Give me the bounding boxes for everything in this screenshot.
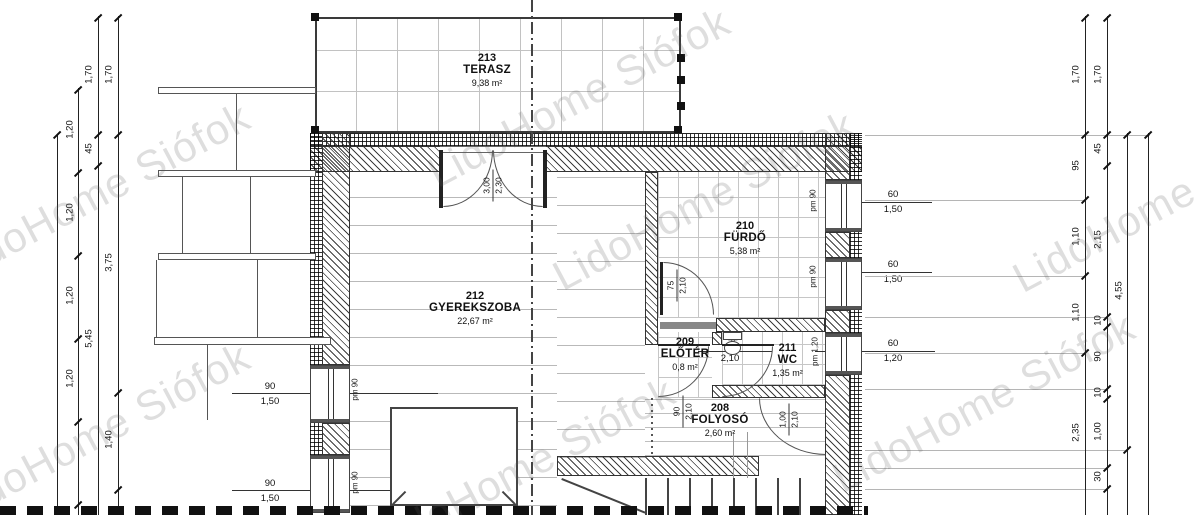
dim-label: 1,70 xyxy=(1093,53,1104,97)
step-edge xyxy=(156,260,157,338)
room-name: FOLYOSÓ xyxy=(650,414,790,427)
sill-height-label: pm 90 xyxy=(351,465,360,501)
dimension-chain-left-4 xyxy=(118,16,119,515)
window-frame xyxy=(826,334,861,337)
sill-height-label: pm 90 xyxy=(809,183,818,219)
window-width: 90 xyxy=(255,478,285,489)
terrace-post xyxy=(311,13,319,21)
dim-label: 45 xyxy=(1093,127,1104,171)
terrace-post xyxy=(677,102,685,110)
room-area: 5,38 m² xyxy=(675,245,815,257)
window-glass xyxy=(841,259,847,309)
room-label-terasz: 213 TERASZ 9,38 m² xyxy=(417,52,557,89)
dim-label: 45 xyxy=(84,127,95,171)
left-wall-insulation xyxy=(310,133,322,365)
room-number: 210 xyxy=(675,220,815,232)
dim-label: 30 xyxy=(1093,455,1104,499)
bathroom-west-wall xyxy=(645,172,658,345)
right-wall xyxy=(825,232,850,258)
window-height: 1,50 xyxy=(255,493,285,504)
terrace-door-leaf xyxy=(543,150,547,208)
room-name: WC xyxy=(740,354,835,367)
right-wall-insulation xyxy=(850,375,862,515)
window-width: 60 xyxy=(878,338,908,349)
dim-label: 1,20 xyxy=(65,191,76,235)
bathroom-window-1 xyxy=(825,180,862,232)
witness-line xyxy=(865,353,1085,354)
dim-label: 2,35 xyxy=(1071,411,1082,455)
room-area: 2,60 m² xyxy=(650,427,790,439)
room-name: GYEREKSZOBA xyxy=(395,302,555,315)
floor-plan-canvas: 3,002,30 xyxy=(0,0,1200,515)
window-width: 60 xyxy=(878,259,908,270)
room-number: 208 xyxy=(650,402,790,414)
step-edge xyxy=(207,345,208,420)
left-window-2 xyxy=(310,455,350,513)
window-glass xyxy=(841,334,847,374)
terrace-post xyxy=(677,76,685,84)
window-glass xyxy=(841,181,847,231)
window-frame xyxy=(826,306,861,309)
dim-label: 1,70 xyxy=(84,53,95,97)
bathroom-south-wall xyxy=(716,318,825,332)
room-number: 212 xyxy=(395,290,555,302)
left-wall-insulation xyxy=(310,423,322,455)
window-glass xyxy=(328,456,334,512)
window-glass xyxy=(328,366,334,422)
right-wall-insulation xyxy=(850,232,862,258)
step-edge xyxy=(250,177,251,254)
dim-label: 3,75 xyxy=(104,241,115,285)
right-wall-insulation xyxy=(850,133,862,180)
window-frame xyxy=(826,259,861,262)
window-frame xyxy=(311,419,349,422)
step-edge xyxy=(257,260,258,338)
dim-label: 1,20 xyxy=(65,274,76,318)
terrace-post xyxy=(674,13,682,21)
left-wall-pier xyxy=(322,423,350,455)
dimension-chain-right-3 xyxy=(1127,133,1128,515)
dim-label: 5,45 xyxy=(84,317,95,361)
witness-line xyxy=(865,468,1107,469)
room-area: 1,35 m² xyxy=(740,367,835,379)
dimension-chain-left-3 xyxy=(98,16,99,515)
dim-label: 95 xyxy=(1071,144,1082,188)
dimension-chain-left-1 xyxy=(57,135,58,515)
window-height: 1,50 xyxy=(255,396,285,407)
right-wall xyxy=(825,375,850,515)
section-cut-strip xyxy=(0,506,868,515)
room-area: 9,38 m² xyxy=(417,77,557,89)
witness-line xyxy=(865,389,1107,390)
dim-label: 1,40 xyxy=(104,418,115,462)
exterior-step xyxy=(158,87,316,94)
step-edge xyxy=(182,177,183,254)
witness-line xyxy=(865,200,1085,201)
dimension-chain-right-1 xyxy=(1085,16,1086,515)
left-window-1 xyxy=(310,365,350,423)
terrace-door-leaf xyxy=(439,150,443,208)
exterior-step xyxy=(158,253,316,260)
childroom-floor xyxy=(557,172,645,458)
terrace-post xyxy=(677,54,685,62)
room-area: 0,8 m² xyxy=(640,361,730,373)
room-name: TERASZ xyxy=(417,64,557,77)
window-width: 60 xyxy=(878,189,908,200)
dim-label: 1,20 xyxy=(65,108,76,152)
sill-height-label: pm 90 xyxy=(351,372,360,408)
right-wall-insulation xyxy=(850,310,862,333)
dimension-chain-right-2 xyxy=(1107,16,1108,515)
window-frame xyxy=(311,456,349,459)
dim-label: 1,00 xyxy=(1093,410,1104,454)
top-wall-insulation xyxy=(310,133,862,146)
bathroom-door-threshold xyxy=(660,322,716,329)
sill-height-label: pm 90 xyxy=(809,259,818,295)
room-label-wc: 211 WC 1,35 m² xyxy=(740,342,835,379)
step-edge xyxy=(236,94,237,171)
dim-label: 1,10 xyxy=(1071,215,1082,259)
exterior-step xyxy=(154,337,331,345)
terrace-door-dimension: 3,002,30 xyxy=(482,170,505,202)
dimension-chain-right-4 xyxy=(1148,133,1149,515)
room-number: 209 xyxy=(640,336,730,348)
bathroom-window-2 xyxy=(825,258,862,310)
room-label-folyoso: 208 FOLYOSÓ 2,60 m² xyxy=(650,402,790,439)
window-width: 90 xyxy=(255,381,285,392)
dim-label: 1,20 xyxy=(65,357,76,401)
window-frame xyxy=(826,181,861,184)
window-height: 1,50 xyxy=(878,204,908,215)
room-label-eloter: 209 ELŐTÉR 0,8 m² xyxy=(640,336,730,373)
witness-line xyxy=(865,276,1085,277)
dim-label: 4,55 xyxy=(1114,269,1125,313)
left-wall xyxy=(322,133,350,365)
witness-line xyxy=(865,489,1107,490)
watermark: LidoHome Siófok xyxy=(0,93,258,293)
stair-wall xyxy=(557,456,759,476)
dimension-chain-left-2 xyxy=(78,88,79,515)
window-frame xyxy=(311,366,349,369)
room-number: 213 xyxy=(417,52,557,64)
dim-label: 1,10 xyxy=(1071,291,1082,335)
witness-line xyxy=(865,450,1127,451)
bathroom-door-dimension: 752,10 xyxy=(666,270,689,302)
watermark: LidoHome Siófok xyxy=(0,333,258,515)
bathroom-door-leaf xyxy=(660,262,663,315)
room-name: FÜRDŐ xyxy=(675,232,815,245)
window-frame xyxy=(826,228,861,231)
room-area: 22,67 m² xyxy=(395,315,555,327)
room-name: ELŐTÉR xyxy=(640,348,730,361)
dim-label: 1,70 xyxy=(1071,53,1082,97)
room-label-furdo: 210 FÜRDŐ 5,38 m² xyxy=(675,220,815,257)
window-height: 1,20 xyxy=(878,353,908,364)
room-number: 211 xyxy=(740,342,835,354)
right-wall xyxy=(825,310,850,333)
dim-label: 1,70 xyxy=(104,53,115,97)
right-wall xyxy=(825,133,850,180)
top-wall xyxy=(310,146,862,172)
bed xyxy=(390,407,518,506)
exterior-step xyxy=(158,170,316,177)
dim-label: 2,15 xyxy=(1093,218,1104,262)
dim-label: 10 xyxy=(1093,371,1104,415)
room-label-gyerekszoba: 212 GYEREKSZOBA 22,67 m² xyxy=(395,290,555,327)
